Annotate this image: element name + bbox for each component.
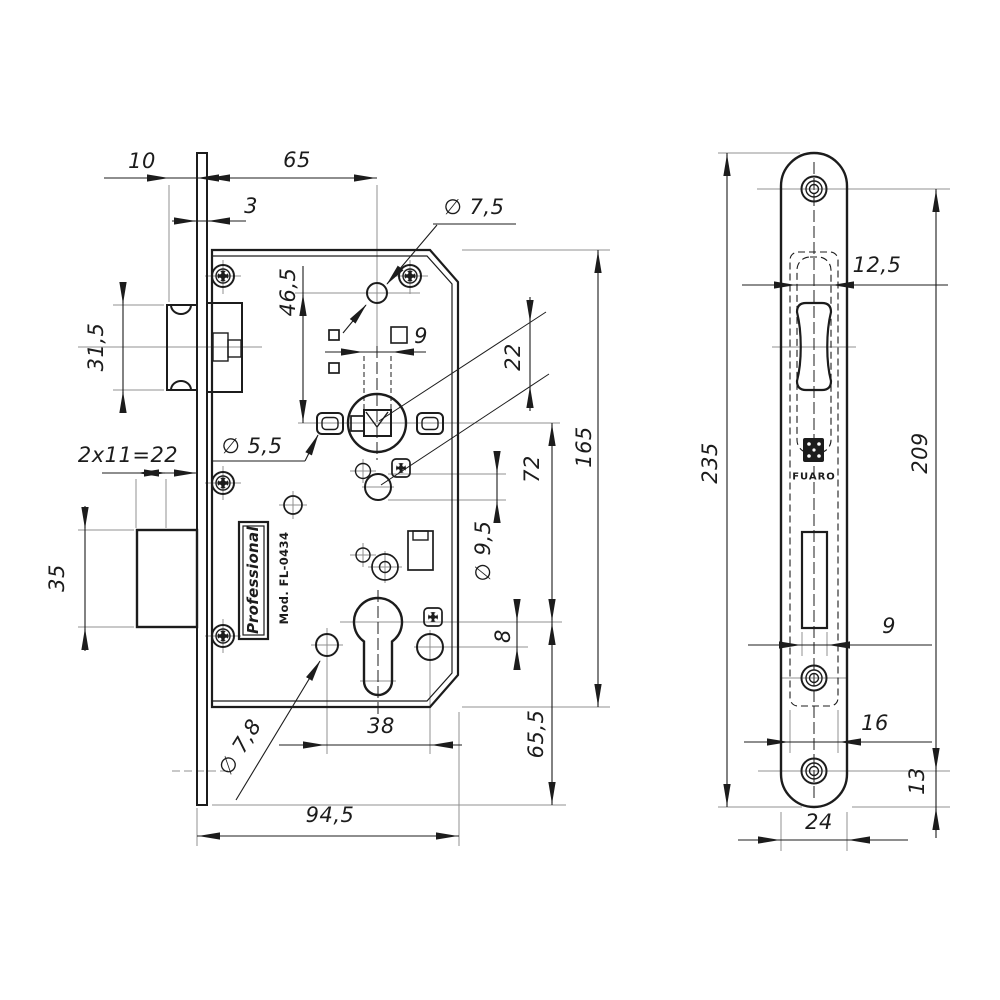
faceplate-edge-view	[197, 153, 207, 805]
dim-faceplate-length: 235	[698, 442, 722, 484]
dim-case-slot-width: 16	[861, 711, 889, 735]
dim-deadbolt-height: 35	[45, 564, 69, 592]
dim-top-hole-offset: 46,5	[276, 268, 300, 317]
brand-logo-icon	[803, 438, 824, 462]
dim-latch-height: 31,5	[84, 323, 108, 372]
dim-hub-to-hole-offset: 22	[501, 343, 525, 371]
series-label: Professional	[244, 526, 262, 634]
dim-bottom-screw-offset: 13	[905, 767, 929, 795]
deadbolt	[137, 530, 197, 627]
dim-cylinder-to-bottom: 65,5	[524, 710, 548, 759]
dim-deadbolt-throw: 2x11=22	[78, 443, 178, 467]
dim-faceplate-thickness: 3	[244, 194, 258, 218]
dim-hole-9-5-dia: ∅ 9,5	[471, 521, 495, 582]
brand-logo-text: FUARO	[792, 472, 836, 483]
side-view	[718, 153, 950, 851]
dim-bottom-holes-span: 38	[367, 714, 395, 738]
dim-case-depth: 94,5	[306, 803, 355, 827]
dim-deadbolt-slot-width: 9	[882, 614, 896, 638]
front-dimension-lines	[85, 178, 598, 836]
lock-technical-drawing: 10 65 3 46,5 ∅ 7,5 9 22 31,5 2x11=22 ∅ 5…	[0, 0, 1000, 1000]
dim-latch-slot-width: 12,5	[853, 253, 902, 277]
dim-screw-centers: 209	[908, 432, 932, 474]
small-screw	[424, 608, 442, 626]
small-square-hole	[329, 363, 339, 373]
dim-faceplate-width: 24	[805, 810, 833, 834]
stop-block	[408, 531, 433, 570]
dim-top-hole-dia: ∅ 7,5	[444, 195, 505, 219]
dim-backset: 65	[283, 148, 311, 172]
dim-fixing-hole-dia: ∅ 5,5	[222, 434, 283, 458]
dim-spindle-square: 9	[414, 324, 428, 348]
small-square-hole	[329, 330, 339, 340]
dim-case-height: 165	[572, 426, 596, 468]
model-label: Mod. FL-0434	[277, 532, 291, 625]
dim-offset-8: 8	[491, 629, 515, 643]
dim-hub-to-cylinder: 72	[520, 455, 544, 483]
dim-latch-projection: 10	[128, 149, 156, 173]
